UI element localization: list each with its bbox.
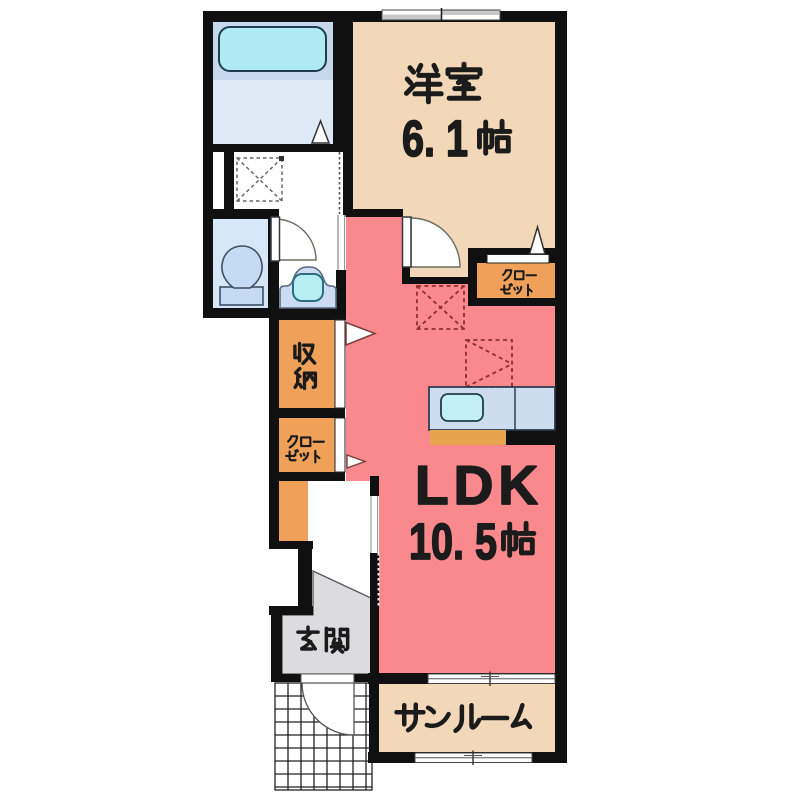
svg-text:LDK: LDK (415, 454, 543, 516)
svg-text:6. 1: 6. 1 (402, 110, 468, 167)
svg-text:10. 5: 10. 5 (409, 513, 497, 570)
